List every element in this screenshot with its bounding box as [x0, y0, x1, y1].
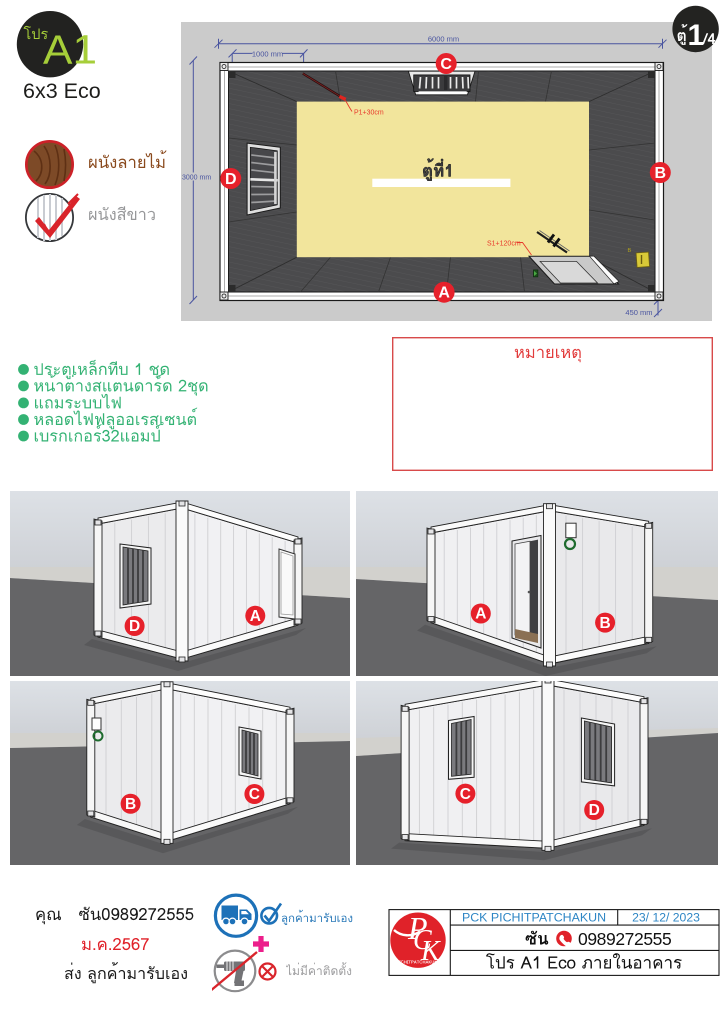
- svg-text:A: A: [438, 285, 450, 302]
- svg-text:A: A: [250, 608, 261, 625]
- svg-text:B: B: [654, 165, 666, 182]
- svg-text:P1+30cm: P1+30cm: [354, 110, 384, 117]
- svg-text:23/ 12/ 2023: 23/ 12/ 2023: [632, 910, 700, 924]
- svg-text:B: B: [627, 248, 631, 254]
- svg-text:A1: A1: [43, 27, 96, 73]
- svg-text:D: D: [129, 618, 140, 635]
- svg-text:PCK PICHITPATCHAKUN: PCK PICHITPATCHAKUN: [462, 910, 606, 924]
- svg-text:A: A: [475, 606, 486, 623]
- svg-text:C: C: [460, 786, 471, 803]
- svg-text:6000 mm: 6000 mm: [427, 35, 458, 44]
- svg-text:3000 mm: 3000 mm: [182, 175, 211, 182]
- svg-text:D: D: [225, 171, 237, 188]
- svg-text:C: C: [440, 56, 452, 73]
- svg-text:C: C: [249, 786, 260, 803]
- svg-text:450 mm: 450 mm: [625, 308, 652, 317]
- svg-text:0989272555: 0989272555: [578, 929, 671, 949]
- svg-text:B: B: [125, 796, 136, 813]
- svg-text:1: 1: [688, 19, 705, 52]
- svg-text:B: B: [599, 615, 610, 632]
- svg-text:S1+120cm: S1+120cm: [487, 241, 521, 248]
- svg-text:1000 mm: 1000 mm: [251, 50, 282, 59]
- svg-text:D: D: [589, 802, 600, 819]
